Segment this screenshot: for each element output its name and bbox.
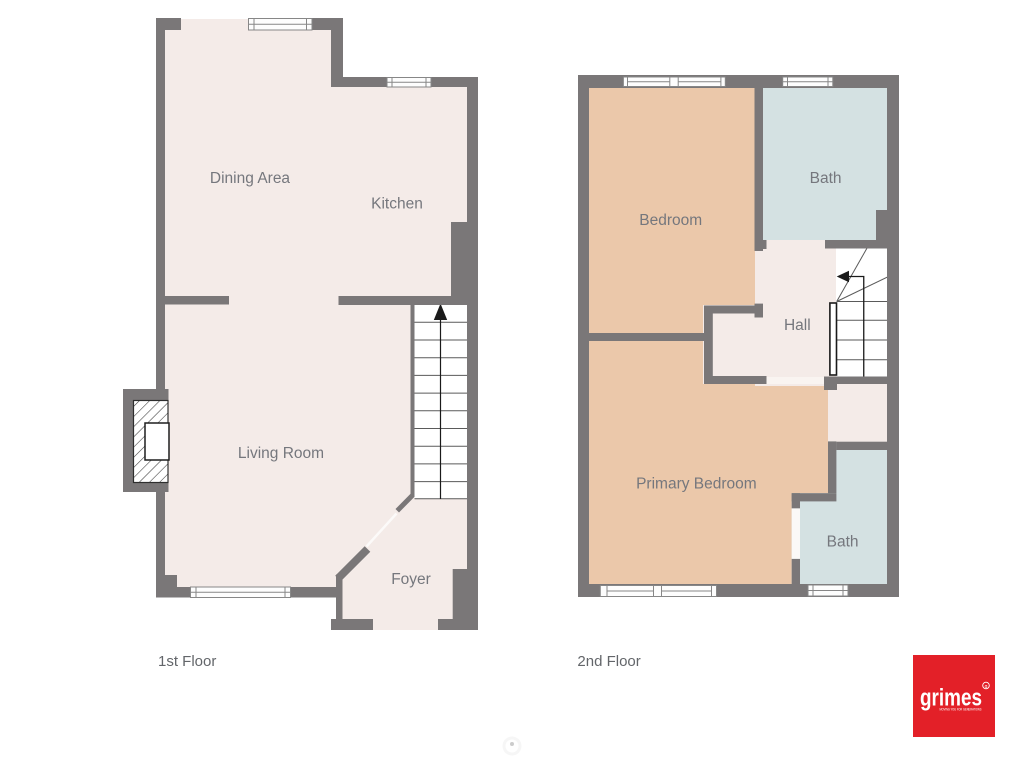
svg-text:Hall: Hall [784, 317, 811, 334]
svg-text:2nd Floor: 2nd Floor [577, 653, 640, 670]
svg-text:1st Floor: 1st Floor [158, 653, 216, 670]
svg-text:Primary Bedroom: Primary Bedroom [636, 476, 757, 493]
svg-text:Kitchen: Kitchen [371, 196, 423, 213]
svg-text:Dining Area: Dining Area [210, 170, 291, 187]
svg-text:MOVING YOU FOR GENERATIONS: MOVING YOU FOR GENERATIONS [940, 707, 982, 712]
svg-text:Bedroom: Bedroom [639, 212, 702, 229]
svg-text:Bath: Bath [827, 534, 859, 551]
svg-text:Bath: Bath [810, 170, 842, 187]
svg-text:g: g [985, 684, 988, 690]
svg-text:Living Room: Living Room [238, 445, 324, 462]
svg-text:Foyer: Foyer [391, 571, 431, 588]
